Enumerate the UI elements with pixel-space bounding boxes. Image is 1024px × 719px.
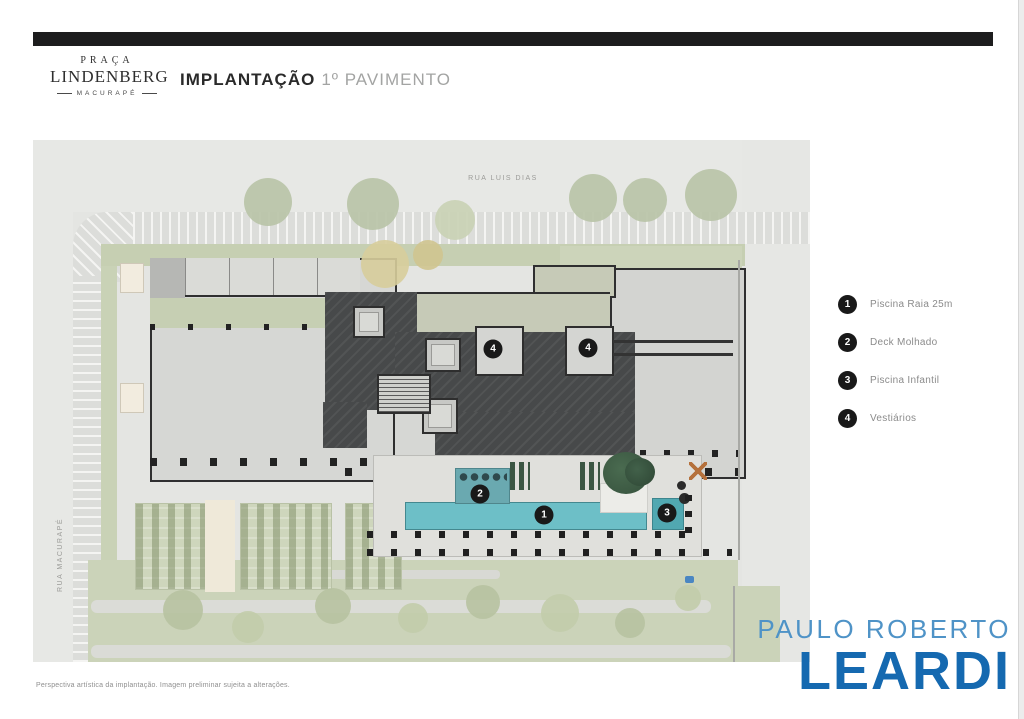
column-dots xyxy=(150,324,345,330)
project-logo: PRAÇA LINDENBERG MACURAPÉ xyxy=(50,55,164,97)
legend-label: Vestiários xyxy=(870,413,916,424)
broker-logo-bottom: LEARDI xyxy=(757,646,1011,697)
legend-item-piscina-raia: 1 Piscina Raia 25m xyxy=(838,295,1008,314)
marker-vestiarios: 4 xyxy=(579,339,598,358)
page-title-bold: IMPLANTAÇÃO xyxy=(180,70,315,89)
loungers xyxy=(510,462,530,490)
page-title: IMPLANTAÇÃO1º PAVIMENTO xyxy=(180,70,451,90)
legend-number-badge: 1 xyxy=(838,295,857,314)
logo-line-macurape: MACURAPÉ xyxy=(50,90,164,97)
x-table xyxy=(689,462,707,480)
elevator-core xyxy=(353,306,385,338)
tree-canopy xyxy=(163,590,203,630)
street-label-top: RUA LUIS DIAS xyxy=(423,175,583,182)
marker-vestiarios: 4 xyxy=(484,340,503,359)
pergola-columns xyxy=(367,531,700,538)
tree-canopy xyxy=(315,588,351,624)
marker-deck-molhado: 2 xyxy=(471,485,490,504)
tree-canopy-yellow xyxy=(361,240,409,288)
pergola-columns xyxy=(685,485,692,533)
legend-item-vestiarios: 4 Vestiários xyxy=(838,409,1008,428)
tree-canopy xyxy=(398,603,428,633)
tree-canopy xyxy=(685,169,737,221)
legend-label: Piscina Infantil xyxy=(870,375,939,386)
entry-canopy xyxy=(120,263,144,293)
wet-deck-loungers xyxy=(458,472,507,482)
tree-canopy xyxy=(541,594,579,632)
tree-canopy xyxy=(623,178,667,222)
logo-line-lindenberg: LINDENBERG xyxy=(50,67,164,87)
tree-canopy xyxy=(466,585,500,619)
street-left xyxy=(33,140,73,662)
logo-line-praca: PRAÇA xyxy=(50,55,164,66)
legend-number-badge: 2 xyxy=(838,333,857,352)
page-right-edge xyxy=(1018,0,1024,719)
legend-label: Deck Molhado xyxy=(870,337,938,348)
tree-canopy xyxy=(675,585,701,611)
marker-piscina-infantil: 3 xyxy=(658,504,677,523)
pergola-columns xyxy=(367,549,732,556)
broker-logo: PAULO ROBERTO LEARDI xyxy=(757,614,1011,697)
disclaimer-text: Perspectiva artística da implantação. Im… xyxy=(36,682,290,689)
legend: 1 Piscina Raia 25m 2 Deck Molhado 3 Pisc… xyxy=(838,295,1008,447)
logo-dash-right xyxy=(142,93,157,94)
garden-bed xyxy=(240,503,332,590)
walkway xyxy=(205,500,235,592)
garden-bed xyxy=(135,503,207,590)
boundary-wall xyxy=(738,260,740,560)
marker-piscina-raia: 1 xyxy=(535,506,554,525)
lawn-marker-icon xyxy=(685,576,694,583)
logo-dash-left xyxy=(57,93,72,94)
site-plan: RUA LUIS DIAS RUA MACURAPÉ 4 4 2 1 3 xyxy=(33,140,810,662)
loungers xyxy=(580,462,600,490)
legend-item-deck-molhado: 2 Deck Molhado xyxy=(838,333,1008,352)
tree-canopy-yellow xyxy=(413,240,443,270)
storefront-dark-block xyxy=(150,258,185,298)
tree-canopy xyxy=(347,178,399,230)
planter-foliage xyxy=(625,458,655,486)
tree-canopy xyxy=(232,611,264,643)
legend-item-piscina-infantil: 3 Piscina Infantil xyxy=(838,371,1008,390)
balcony-lines xyxy=(613,340,733,356)
top-divider-bar xyxy=(33,32,993,46)
street-label-left: RUA MACURAPÉ xyxy=(57,500,64,610)
elevator-core xyxy=(425,338,461,372)
legend-number-badge: 4 xyxy=(838,409,857,428)
legend-label: Piscina Raia 25m xyxy=(870,299,953,310)
tree-canopy xyxy=(435,200,475,240)
tree-canopy xyxy=(244,178,292,226)
page-title-light: 1º PAVIMENTO xyxy=(321,70,451,89)
tree-canopy xyxy=(615,608,645,638)
stairs xyxy=(377,374,431,414)
hedge-left xyxy=(101,266,117,562)
tower-roof-block xyxy=(323,402,367,448)
legend-number-badge: 3 xyxy=(838,371,857,390)
entry-canopy xyxy=(120,383,144,413)
lawn-path xyxy=(91,645,731,658)
